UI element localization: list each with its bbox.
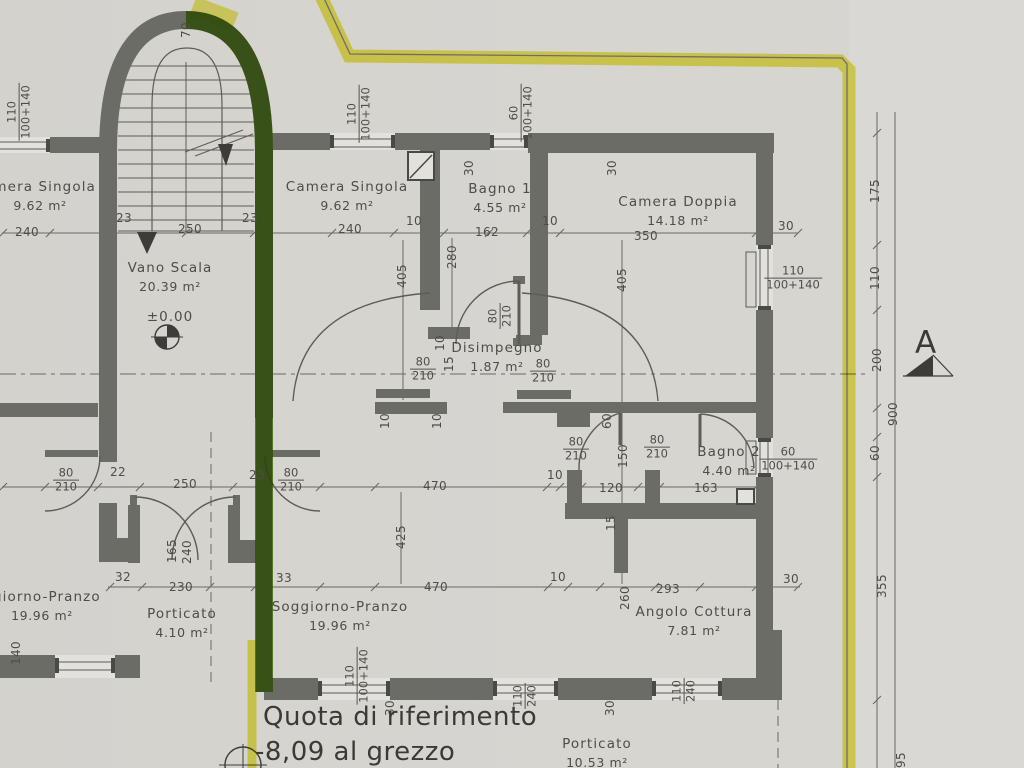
dimension-label: 425: [394, 525, 408, 549]
size-width: 110: [346, 85, 360, 143]
dimension-label: 10: [547, 468, 563, 482]
dimension-label: 22: [110, 465, 126, 479]
size-height: 100+140: [20, 83, 33, 141]
dimension-label: 23: [242, 211, 258, 225]
room-label-bagno-1: Bagno 14.55 m²: [468, 181, 532, 215]
room-label-angolo-cottura: Angolo Cottura7.81 m²: [636, 604, 753, 638]
size-label: 80210: [53, 467, 79, 494]
dimension-label: 15: [442, 356, 456, 372]
room-area: 4.40 m²: [697, 463, 761, 478]
plan-labels: Camera Singola9.62 m²Bagno 14.55 m²Camer…: [0, 0, 1024, 768]
size-width: 80: [53, 467, 79, 481]
dimension-label: 10: [433, 335, 447, 351]
size-label: 80210: [563, 436, 589, 463]
size-width: 110: [344, 647, 358, 705]
room-name: Porticato: [147, 606, 217, 622]
dimension-label: 60: [600, 413, 614, 429]
room-name: Disimpegno: [451, 340, 542, 356]
dimension-label: 405: [395, 264, 409, 288]
size-label: 80210: [644, 434, 670, 461]
section-marker-label: A: [915, 325, 936, 361]
size-label: 60100+140: [508, 84, 535, 142]
size-label: 110100+140: [344, 647, 371, 705]
size-height: 210: [530, 372, 556, 385]
size-height: 210: [501, 303, 514, 329]
dimension-label: 470: [423, 479, 447, 493]
size-height: 100+140: [358, 647, 371, 705]
room-label-porticato: Porticato4.10 m²: [147, 606, 217, 640]
room-name: ggiorno-Pranzo: [0, 589, 101, 605]
size-label: 110100+140: [764, 265, 822, 292]
dimension-label: 350: [634, 229, 658, 243]
dimension-label: 30: [603, 700, 617, 716]
dimension-label: 240: [15, 225, 39, 239]
dimension-label: 200: [870, 348, 884, 372]
room-label-camera-singola: Camera Singola9.62 m²: [286, 179, 408, 213]
size-height: 210: [53, 481, 79, 494]
room-area: 4.10 m²: [147, 625, 217, 640]
size-width: 110: [764, 265, 822, 279]
dimension-label: 10: [550, 570, 566, 584]
size-label: 60100+140: [759, 446, 817, 473]
room-label-disimpegno: Disimpegno1.87 m²: [451, 340, 542, 374]
dimension-label: 10: [430, 413, 444, 429]
dimension-label: 30: [605, 160, 619, 176]
dimension-label: 405: [615, 268, 629, 292]
size-height: 100+140: [759, 460, 817, 473]
dimension-label: 10: [406, 214, 422, 228]
dimension-label: 162: [475, 225, 499, 239]
dimension-label: 355: [875, 574, 889, 598]
room-name: Camera Doppia: [618, 194, 737, 210]
dimension-label: 900: [886, 402, 900, 426]
room-name: Vano Scala: [128, 260, 213, 276]
size-width: 110: [6, 83, 20, 141]
dimension-label: 150: [616, 444, 630, 468]
room-name: Soggiorno-Pranzo: [272, 599, 408, 615]
size-label: 80210: [487, 303, 514, 329]
dimension-label: 10: [542, 214, 558, 228]
dimension-label: 30: [462, 160, 476, 176]
dimension-label: 140: [9, 641, 23, 665]
dimension-label: 240: [180, 540, 194, 564]
dimension-label: 33: [276, 571, 292, 585]
room-area: 9.62 m²: [286, 198, 408, 213]
room-name: Bagno 1: [468, 181, 532, 197]
dimension-label: 10: [378, 413, 392, 429]
size-label: 80210: [410, 356, 436, 383]
size-label: 110100+140: [346, 85, 373, 143]
size-width: 110: [671, 678, 685, 704]
room-name: Bagno 2: [697, 444, 761, 460]
size-height: 100+140: [522, 84, 535, 142]
size-width: 80: [563, 436, 589, 450]
room-area: 19.96 m²: [0, 608, 101, 623]
room-area: 10.53 m²: [562, 755, 632, 768]
size-height: 240: [685, 678, 698, 704]
room-name: amera Singola: [0, 179, 96, 195]
room-area: 20.39 m²: [128, 279, 213, 294]
room-area: 7.81 m²: [636, 623, 753, 638]
size-height: 210: [278, 481, 304, 494]
size-height: 210: [563, 450, 589, 463]
dimension-label: 163: [694, 481, 718, 495]
dimension-label: 250: [173, 477, 197, 491]
size-width: 60: [508, 84, 522, 142]
size-height: 100+140: [360, 85, 373, 143]
size-width: 80: [644, 434, 670, 448]
dimension-label: 470: [424, 580, 448, 594]
room-label-vano-scala: Vano Scala20.39 m²: [128, 260, 213, 294]
room-area: 1.87 m²: [451, 359, 542, 374]
dimension-label: 280: [445, 245, 459, 269]
size-label: 80210: [530, 358, 556, 385]
dimension-label: 240: [338, 222, 362, 236]
room-label-ggiorno-pranzo: ggiorno-Pranzo19.96 m²: [0, 589, 101, 623]
size-label: 110100+140: [6, 83, 33, 141]
room-label-camera-doppia: Camera Doppia14.18 m²: [618, 194, 737, 228]
room-label-soggiorno-pranzo: Soggiorno-Pranzo19.96 m²: [272, 599, 408, 633]
dimension-label: 175: [868, 179, 882, 203]
size-width: 80: [278, 467, 304, 481]
room-label-amera-singola: amera Singola9.62 m²: [0, 179, 96, 213]
dimension-label: 30: [778, 219, 794, 233]
room-area: 9.62 m²: [0, 198, 96, 213]
reference-note-line1: Quota di riferimento: [263, 702, 537, 732]
room-area: 19.96 m²: [272, 618, 408, 633]
size-height: 210: [410, 370, 436, 383]
dimension-label: 23: [249, 468, 265, 482]
level-label: ±0.00: [147, 309, 193, 325]
floor-plan-scan: Camera Singola9.62 m²Bagno 14.55 m²Camer…: [0, 0, 1024, 768]
dimension-label: 23: [116, 211, 132, 225]
dimension-label: 250: [178, 222, 202, 236]
dimension-label: 60: [868, 445, 882, 461]
size-width: 80: [410, 356, 436, 370]
dimension-label: 32: [115, 570, 131, 584]
size-label: 110240: [671, 678, 698, 704]
room-name: Angolo Cottura: [636, 604, 753, 620]
size-width: 80: [487, 303, 501, 329]
room-area: 4.55 m²: [468, 200, 532, 215]
size-width: 60: [759, 446, 817, 460]
size-width: 80: [530, 358, 556, 372]
dimension-label: 230: [169, 580, 193, 594]
size-label: 80210: [278, 467, 304, 494]
dimension-label: 165: [165, 539, 179, 563]
size-height: 100+140: [764, 279, 822, 292]
room-name: Camera Singola: [286, 179, 408, 195]
dimension-label: 95: [894, 752, 908, 768]
dimension-label: 30: [783, 572, 799, 586]
reference-note-line2: -8,09 al grezzo: [255, 737, 455, 767]
room-name: Porticato: [562, 736, 632, 752]
room-label-porticato: Porticato10.53 m²: [562, 736, 632, 768]
dimension-label: 15: [604, 515, 618, 531]
room-area: 14.18 m²: [618, 213, 737, 228]
dimension-label: 120: [599, 481, 623, 495]
room-label-bagno-2: Bagno 24.40 m²: [697, 444, 761, 478]
dimension-label: 293: [656, 582, 680, 596]
dimension-label: 110: [868, 266, 882, 290]
size-height: 210: [644, 448, 670, 461]
dimension-label: 70: [179, 22, 193, 38]
dimension-label: 260: [618, 586, 632, 610]
